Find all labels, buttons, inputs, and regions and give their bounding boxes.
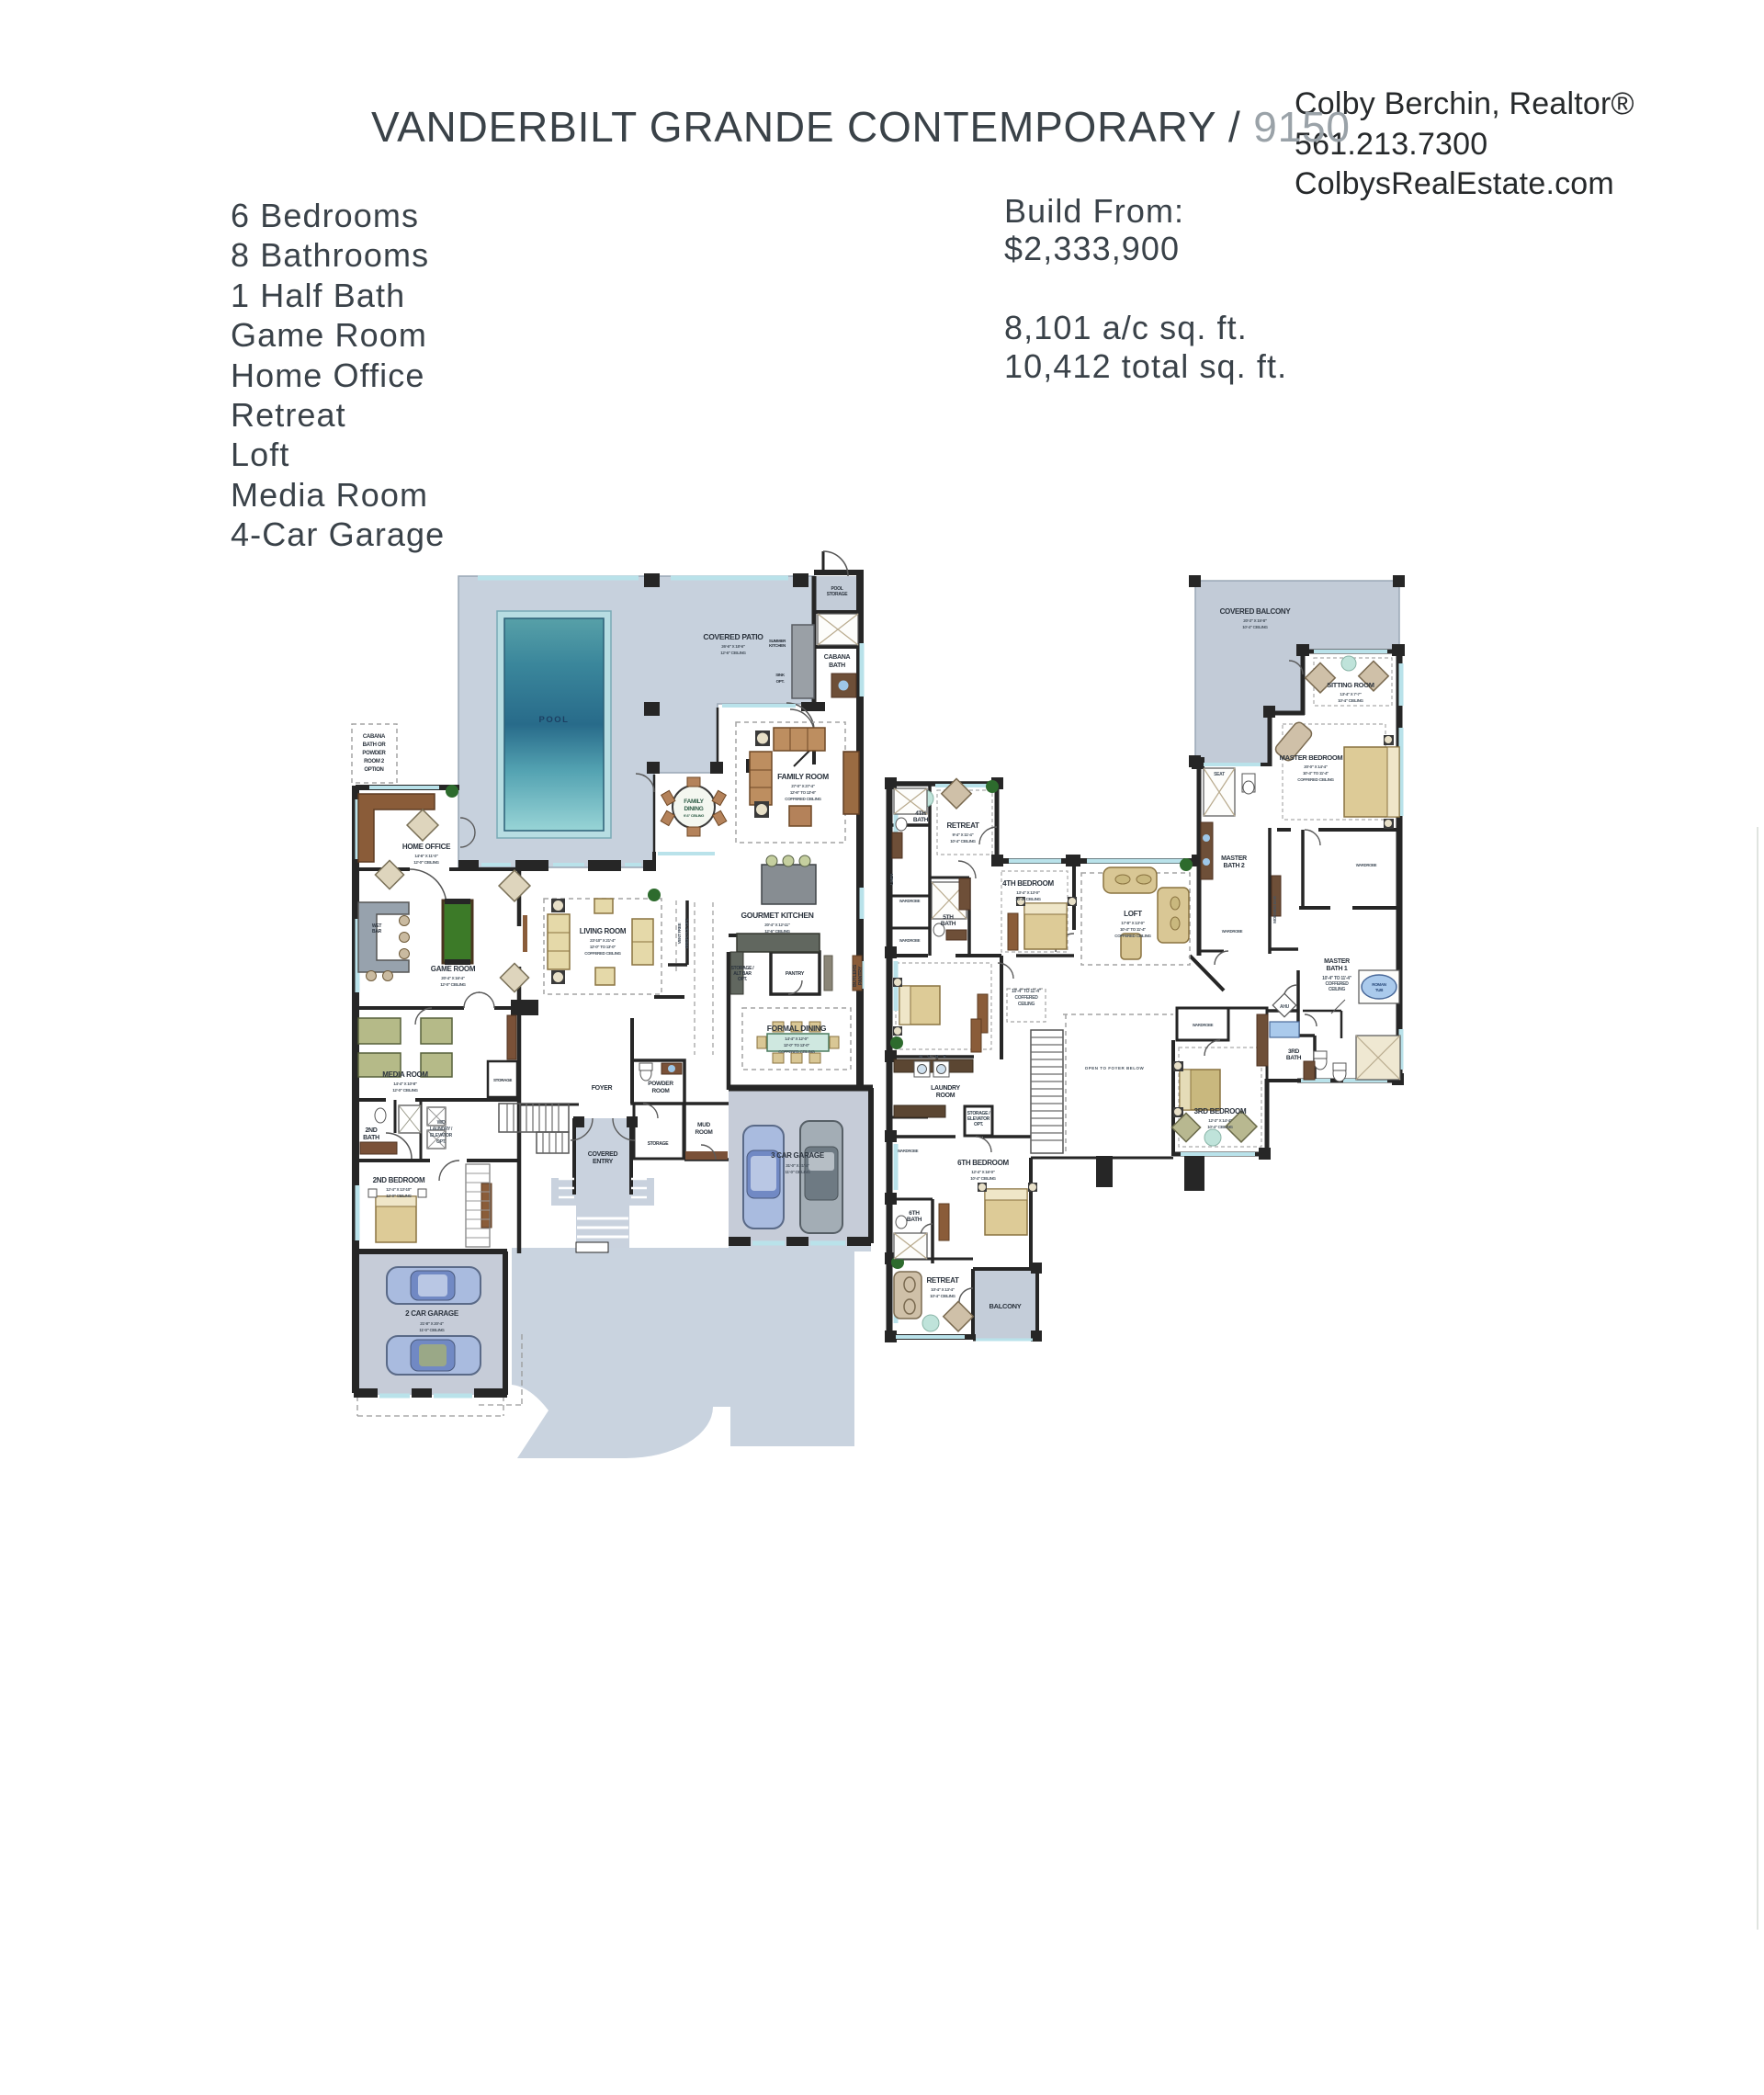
- svg-text:10'-4" CEILING: 10'-4" CEILING: [950, 839, 976, 844]
- svg-text:5TH: 5TH: [943, 914, 954, 921]
- svg-text:LINEN: LINEN: [889, 874, 894, 885]
- svg-text:GOURMET KITCHEN: GOURMET KITCHEN: [741, 911, 813, 920]
- svg-text:12'-0" TO 13'-0": 12'-0" TO 13'-0": [784, 1043, 809, 1047]
- svg-text:4TH: 4TH: [915, 810, 926, 817]
- svg-text:MASTER BEDROOM: MASTER BEDROOM: [1280, 753, 1343, 762]
- svg-text:6TH: 6TH: [909, 1210, 920, 1217]
- svg-text:3 CAR GARAGE: 3 CAR GARAGE: [771, 1151, 825, 1160]
- svg-text:6TH BEDROOM: 6TH BEDROOM: [957, 1159, 1009, 1167]
- svg-text:ROOM: ROOM: [936, 1093, 955, 1099]
- svg-text:10'-4" X 13'-4": 10'-4" X 13'-4": [931, 1287, 955, 1292]
- svg-text:SEAT: SEAT: [1214, 772, 1225, 777]
- svg-text:23'-10" X 21'-4": 23'-10" X 21'-4": [590, 938, 616, 943]
- svg-text:MEDIA ROOM: MEDIA ROOM: [382, 1070, 428, 1079]
- svg-text:3RD: 3RD: [1288, 1048, 1300, 1055]
- svg-text:WARDROBE: WARDROBE: [1356, 863, 1377, 867]
- svg-text:CABANA: CABANA: [363, 734, 386, 740]
- svg-text:10'-4" CEILING: 10'-4" CEILING: [1015, 897, 1041, 901]
- svg-text:13'-4" X 13'-0": 13'-4" X 13'-0": [1016, 890, 1040, 895]
- svg-text:SITTING ROOM: SITTING ROOM: [1327, 681, 1374, 689]
- svg-text:COFFERED: COFFERED: [1014, 995, 1038, 1001]
- svg-text:OPTION: OPTION: [364, 767, 383, 773]
- svg-text:14'-4" X 10'-8": 14'-4" X 10'-8": [393, 1081, 417, 1086]
- svg-text:26'-6" X 18'-6": 26'-6" X 18'-6": [721, 644, 745, 649]
- svg-text:10'-4" TO 11'-4": 10'-4" TO 11'-4": [1120, 927, 1146, 932]
- svg-text:12'-0" TO 13'-0": 12'-0" TO 13'-0": [590, 945, 616, 949]
- svg-text:BATH: BATH: [363, 1135, 379, 1141]
- svg-text:10'-4" CEILING: 10'-4" CEILING: [930, 1294, 955, 1298]
- svg-text:WARDROBE: WARDROBE: [1193, 1023, 1214, 1027]
- svg-text:BALCONY: BALCONY: [989, 1302, 1022, 1310]
- svg-text:COFFERED CEILING: COFFERED CEILING: [1297, 777, 1334, 782]
- svg-text:BATH: BATH: [941, 921, 956, 927]
- svg-text:FAMILY: FAMILY: [684, 798, 704, 805]
- svg-text:ROOM: ROOM: [651, 1088, 669, 1094]
- svg-text:BATH: BATH: [1286, 1055, 1302, 1061]
- svg-text:12'-0" CEILING: 12'-0" CEILING: [392, 1088, 418, 1093]
- svg-text:MUD: MUD: [697, 1122, 711, 1128]
- svg-text:POWDER: POWDER: [648, 1081, 673, 1087]
- svg-text:KITCHEN: KITCHEN: [769, 643, 786, 648]
- svg-text:11'-0" CEILING: 11'-0" CEILING: [785, 1170, 810, 1174]
- svg-text:21'-8" X 20'-4": 21'-8" X 20'-4": [420, 1321, 444, 1326]
- svg-text:HOME OFFICE: HOME OFFICE: [402, 843, 451, 851]
- svg-text:COFFERED CEILING: COFFERED CEILING: [1114, 934, 1151, 938]
- svg-text:ENTRY: ENTRY: [593, 1159, 614, 1165]
- svg-text:9'-4" X 11'-4": 9'-4" X 11'-4": [953, 832, 974, 837]
- svg-text:9'-6" CEILING: 9'-6" CEILING: [684, 813, 704, 818]
- svg-text:20'-4" X 16'-4": 20'-4" X 16'-4": [441, 976, 465, 980]
- svg-text:4TH BEDROOM: 4TH BEDROOM: [1002, 879, 1054, 888]
- svg-text:W/D: W/D: [437, 1120, 447, 1126]
- svg-text:10'-4" TO 11'-4": 10'-4" TO 11'-4": [1303, 771, 1329, 776]
- svg-text:12'-0" CEILING: 12'-0" CEILING: [440, 982, 466, 987]
- svg-text:BAR: BAR: [372, 929, 382, 934]
- svg-text:12'-0" CEILING: 12'-0" CEILING: [413, 860, 439, 865]
- svg-text:FOYER: FOYER: [592, 1085, 613, 1092]
- svg-text:12'-6" CEILING: 12'-6" CEILING: [764, 929, 790, 934]
- svg-text:COFFERED CEILING: COFFERED CEILING: [778, 1049, 815, 1054]
- svg-text:10'-4" CEILING: 10'-4" CEILING: [1207, 1125, 1233, 1129]
- svg-text:CABANA: CABANA: [824, 654, 851, 661]
- svg-text:2ND: 2ND: [365, 1127, 377, 1134]
- svg-text:31'-0" X 21'-4": 31'-0" X 21'-4": [786, 1163, 809, 1168]
- svg-text:POOL: POOL: [539, 715, 570, 725]
- svg-text:FAMILY ROOM: FAMILY ROOM: [777, 772, 829, 781]
- svg-text:RETREAT: RETREAT: [926, 1276, 958, 1285]
- svg-text:2ND BEDROOM: 2ND BEDROOM: [373, 1176, 425, 1184]
- svg-text:MASTER: MASTER: [1324, 958, 1350, 965]
- svg-text:RETREAT: RETREAT: [946, 821, 978, 830]
- svg-text:MASTER: MASTER: [1221, 855, 1247, 862]
- svg-text:TUB: TUB: [1375, 988, 1384, 992]
- svg-text:BATH: BATH: [913, 817, 929, 823]
- svg-text:12'-4" X 16'-0": 12'-4" X 16'-0": [971, 1170, 995, 1174]
- svg-text:OPT.: OPT.: [974, 1122, 984, 1127]
- svg-text:LAUNDRY: LAUNDRY: [931, 1085, 960, 1092]
- svg-text:GAME ROOM: GAME ROOM: [431, 965, 476, 973]
- svg-text:20'-3" X 15'-8": 20'-3" X 15'-8": [1243, 618, 1267, 623]
- svg-text:LIVING ROOM: LIVING ROOM: [580, 927, 627, 935]
- svg-text:20'-4" X 12'-11": 20'-4" X 12'-11": [764, 923, 790, 927]
- svg-text:WARDROBE: WARDROBE: [898, 1149, 919, 1153]
- svg-text:MORNING BAR: MORNING BAR: [1272, 895, 1277, 923]
- svg-text:ROOM: ROOM: [695, 1129, 712, 1136]
- svg-text:POWDER: POWDER: [362, 751, 386, 756]
- svg-text:20'-0" X 14'-4": 20'-0" X 14'-4": [1304, 764, 1328, 769]
- svg-text:17'-8" X 13'-0": 17'-8" X 13'-0": [1121, 921, 1145, 925]
- svg-text:AHU: AHU: [1280, 1004, 1290, 1010]
- svg-text:12'-6" TO 13'-6": 12'-6" TO 13'-6": [790, 790, 816, 795]
- svg-text:3RD BEDROOM: 3RD BEDROOM: [1194, 1107, 1247, 1115]
- svg-text:27'-0" X 27'-4": 27'-0" X 27'-4": [791, 784, 815, 788]
- svg-text:14'-4" X 12'-0": 14'-4" X 12'-0": [785, 1036, 808, 1041]
- svg-text:DINING: DINING: [684, 806, 704, 812]
- svg-text:BATH 2: BATH 2: [1224, 863, 1245, 869]
- svg-text:ROOM 2: ROOM 2: [364, 759, 385, 764]
- svg-text:10'-4" TO 11'-4": 10'-4" TO 11'-4": [1012, 989, 1042, 994]
- svg-text:SINK: SINK: [775, 673, 786, 677]
- svg-text:OPT.: OPT.: [738, 977, 748, 982]
- svg-text:10'-4" CEILING: 10'-4" CEILING: [970, 1176, 996, 1181]
- svg-text:12'-3" X 14'-4": 12'-3" X 14'-4": [1208, 1118, 1232, 1123]
- svg-text:ROMAN: ROMAN: [1372, 982, 1386, 987]
- svg-text:BATH: BATH: [907, 1217, 922, 1223]
- svg-text:14'-6" X 11'-0": 14'-6" X 11'-0": [414, 854, 437, 858]
- svg-text:M O R E: M O R E: [919, 1054, 947, 1059]
- svg-text:10'-4" CEILING: 10'-4" CEILING: [1338, 698, 1363, 703]
- svg-text:STORAGE: STORAGE: [493, 1078, 512, 1082]
- svg-text:VENT FREE: VENT FREE: [677, 923, 682, 944]
- svg-text:2 CAR GARAGE: 2 CAR GARAGE: [405, 1309, 459, 1318]
- svg-text:STORAGE: STORAGE: [827, 592, 848, 597]
- svg-text:BATH 1: BATH 1: [1327, 966, 1348, 972]
- svg-text:CEILING: CEILING: [1018, 1002, 1035, 1007]
- svg-text:11'-0" CEILING: 11'-0" CEILING: [419, 1328, 445, 1332]
- svg-text:ELEVATOR: ELEVATOR: [430, 1133, 453, 1138]
- svg-text:12'-4" X 13'-10": 12'-4" X 13'-10": [386, 1187, 412, 1192]
- svg-text:STORAGE: STORAGE: [648, 1141, 669, 1147]
- svg-text:10'-4" CEILING: 10'-4" CEILING: [1242, 625, 1268, 629]
- svg-text:PANTRY: PANTRY: [858, 966, 864, 985]
- svg-text:OPT.: OPT.: [436, 1139, 447, 1145]
- svg-text:13'-4" X 7'-7": 13'-4" X 7'-7": [1340, 692, 1361, 696]
- svg-text:OPT.: OPT.: [776, 679, 785, 684]
- svg-text:LOFT: LOFT: [1124, 910, 1142, 918]
- svg-text:WARDROBE: WARDROBE: [899, 938, 921, 943]
- svg-text:OPEN TO FOYER BELOW: OPEN TO FOYER BELOW: [1085, 1066, 1145, 1070]
- svg-text:FORMAL DINING: FORMAL DINING: [767, 1024, 827, 1033]
- svg-text:COVERED BALCONY: COVERED BALCONY: [1220, 607, 1292, 616]
- svg-text:12'-0" CEILING: 12'-0" CEILING: [386, 1194, 412, 1198]
- svg-text:WARDROBE: WARDROBE: [1222, 929, 1243, 934]
- svg-text:WARDROBE: WARDROBE: [899, 899, 921, 903]
- svg-text:COVERED PATIO: COVERED PATIO: [703, 632, 763, 641]
- svg-text:BATH: BATH: [829, 662, 845, 669]
- svg-text:CEILING: CEILING: [1329, 987, 1346, 992]
- svg-text:COFFERED CEILING: COFFERED CEILING: [584, 951, 621, 956]
- svg-text:12'-6" CEILING: 12'-6" CEILING: [720, 651, 746, 655]
- svg-text:COFFERED CEILING: COFFERED CEILING: [785, 797, 821, 801]
- svg-text:BATH OR: BATH OR: [363, 742, 387, 748]
- svg-text:LAUNDRY /: LAUNDRY /: [430, 1127, 453, 1132]
- svg-text:COVERED: COVERED: [588, 1151, 618, 1158]
- svg-text:FIREPLACE OPT.: FIREPLACE OPT.: [684, 919, 689, 949]
- svg-text:PANTRY: PANTRY: [786, 971, 805, 977]
